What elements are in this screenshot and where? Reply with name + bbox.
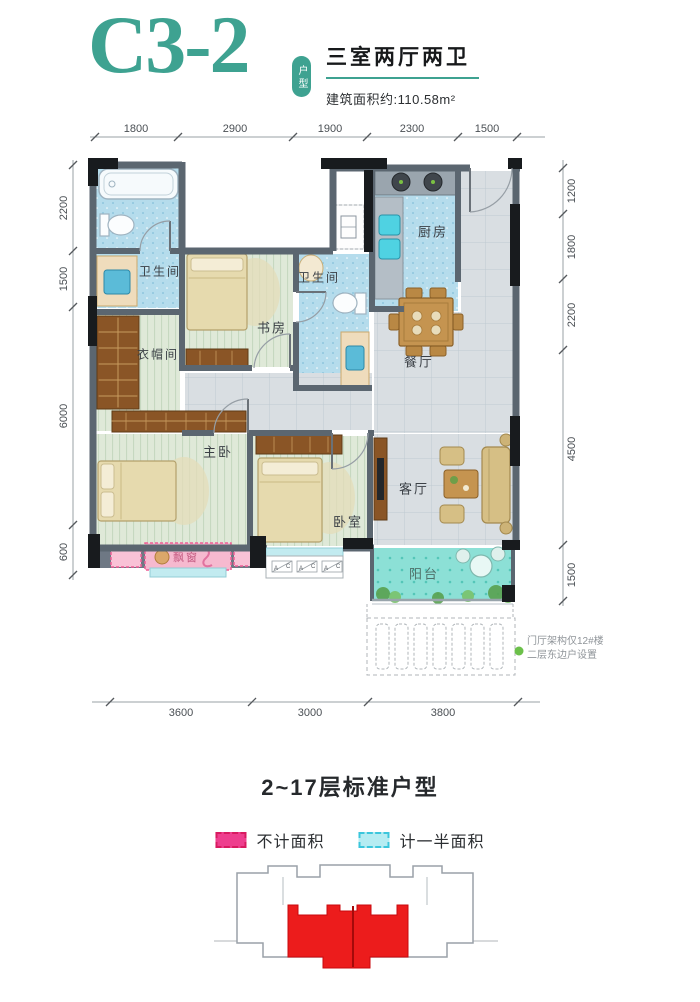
- dim-top-2: 2900: [223, 123, 247, 135]
- stove-icon: [375, 169, 457, 195]
- room-label-master: 主卧: [203, 442, 233, 461]
- legend: 不计面积 计一半面积: [215, 828, 484, 852]
- plan-note: 门厅架构仅12#楼 二层东边户设置: [527, 635, 647, 663]
- bed-icon: [187, 254, 247, 330]
- unit-type-badge: 户型: [292, 56, 311, 97]
- wardrobe-icon: [112, 411, 246, 432]
- window-mark: A: [299, 566, 303, 572]
- window-mark: A: [274, 566, 278, 572]
- room-label-living: 客厅: [399, 479, 429, 498]
- title-underline: [326, 77, 479, 79]
- dim-top-1: 1800: [124, 123, 148, 135]
- window-mark: A: [324, 566, 328, 572]
- legend-item-half: 计一半面积: [359, 828, 485, 852]
- window-mark: C: [286, 564, 291, 570]
- window-mark: C: [311, 564, 316, 570]
- building-key-plan: [214, 865, 498, 968]
- legend-swatch-half: [359, 832, 390, 848]
- dim-left-1: 2200: [58, 196, 70, 220]
- fridge-nook: [334, 205, 364, 249]
- bay-decor-icon: [155, 550, 169, 564]
- vanity-icon: [97, 256, 137, 306]
- dim-right-5: 1500: [566, 563, 578, 587]
- wardrobe-icon: [97, 316, 139, 409]
- note-dot: [515, 647, 524, 656]
- dining-table-icon: [389, 288, 463, 356]
- dim-bottom-3: 3800: [431, 707, 455, 719]
- entrance-structure: [367, 604, 515, 675]
- dim-bottom-2: 3000: [298, 707, 322, 719]
- room-label-study: 书房: [257, 318, 287, 337]
- dim-top-4: 2300: [400, 123, 424, 135]
- window-mark: C: [336, 564, 341, 570]
- room-label-dining: 餐厅: [404, 352, 434, 371]
- room-label-baywindow: 飘窗: [173, 549, 199, 565]
- bathtub-icon: [99, 169, 178, 199]
- dim-right-3: 2200: [566, 303, 578, 327]
- sink-icon: [375, 197, 403, 299]
- room-label-bathroom2: 卫生间: [298, 269, 340, 286]
- room-label-bathroom1: 卫生间: [139, 263, 181, 280]
- room-label-balcony: 阳台: [409, 564, 439, 583]
- legend-label-half: 计一半面积: [400, 828, 485, 852]
- dim-top-5: 1500: [475, 123, 499, 135]
- dim-left-4: 600: [58, 543, 70, 561]
- toilet-icon: [100, 214, 134, 236]
- dim-bottom-1: 3600: [169, 707, 193, 719]
- legend-label-excluded: 不计面积: [256, 828, 324, 852]
- dim-right-4: 4500: [566, 437, 578, 461]
- toilet-icon: [333, 293, 366, 314]
- bedroom-window: A C A C A C: [266, 548, 343, 578]
- legend-item-excluded: 不计面积: [215, 828, 324, 852]
- area-text: 建筑面积约:110.58m²: [326, 89, 456, 108]
- dim-top-3: 1900: [318, 123, 342, 135]
- dim-left-3: 6000: [58, 404, 70, 428]
- note-line-1: 门厅架构仅12#楼: [527, 635, 647, 649]
- room-label-bedroom2: 卧室: [333, 512, 363, 531]
- layout-title: 三室两厅两卫: [326, 41, 470, 71]
- vanity-icon: [341, 332, 369, 386]
- floor-range-title: 2~17层标准户型: [261, 770, 439, 802]
- bed-icon: [98, 461, 176, 521]
- floorplan-page: A C A C A C: [0, 0, 700, 1002]
- legend-swatch-excluded: [215, 832, 246, 848]
- room-label-kitchen: 厨房: [418, 222, 448, 241]
- tv-cabinet-icon: [374, 438, 387, 520]
- note-line-2: 二层东边户设置: [527, 649, 647, 663]
- room-label-cloakroom: 衣帽间: [137, 346, 179, 363]
- dim-right-2: 1800: [566, 235, 578, 259]
- dim-left-2: 1500: [58, 267, 70, 291]
- wardrobe-icon: [256, 435, 342, 454]
- dim-right-1: 1200: [566, 179, 578, 203]
- entry-floor: [461, 171, 514, 312]
- bed-icon: [258, 458, 322, 542]
- unit-code: C3-2: [88, 4, 249, 86]
